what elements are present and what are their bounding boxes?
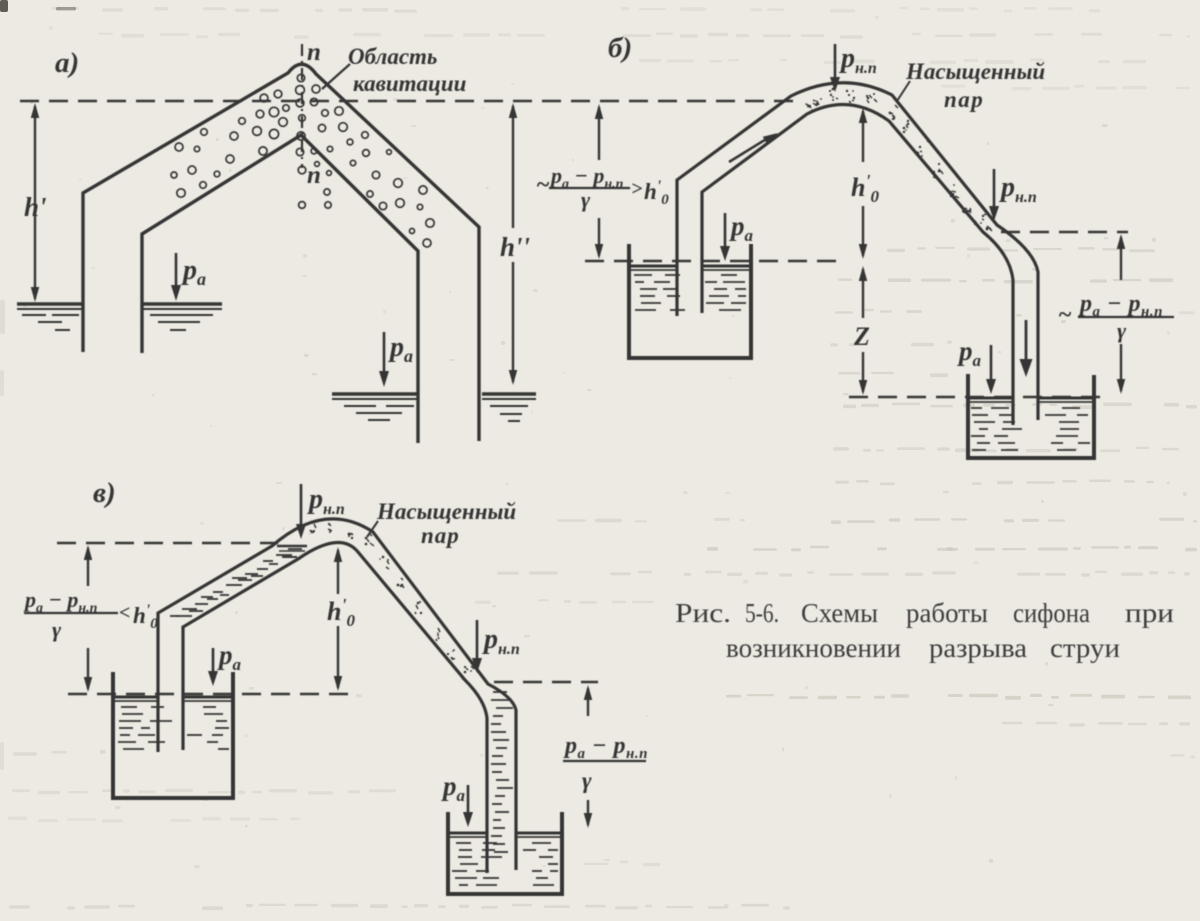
svg-text:γ: γ: [582, 768, 592, 793]
svg-text:а): а): [55, 47, 79, 79]
svg-text:Насыщенный: Насыщенный: [376, 499, 516, 524]
svg-text:Насыщенный: Насыщенный: [905, 59, 1045, 84]
svg-text:γ: γ: [581, 187, 591, 212]
svg-text:n: n: [307, 39, 321, 66]
svg-text:разрыва: разрыва: [929, 633, 1027, 663]
svg-text:n: n: [307, 162, 321, 189]
svg-text:~: ~: [536, 172, 550, 198]
svg-text:сифона: сифона: [1013, 598, 1090, 628]
svg-text:возникновении: возникновении: [726, 633, 901, 663]
svg-text:h': h': [24, 192, 47, 222]
svg-text:<: <: [119, 602, 130, 624]
svg-text:пар: пар: [421, 523, 460, 548]
svg-text:Схемы: Схемы: [801, 598, 878, 628]
svg-text:Область: Область: [348, 44, 437, 69]
svg-text:~: ~: [1058, 302, 1072, 328]
svg-text:в): в): [93, 477, 116, 509]
svg-text:γ: γ: [1117, 318, 1127, 343]
svg-text:Рис.: Рис.: [675, 598, 731, 628]
svg-text:h'': h'': [500, 232, 530, 262]
svg-text:при: при: [1125, 598, 1174, 628]
svg-text:γ: γ: [52, 617, 62, 642]
svg-text:работы: работы: [906, 598, 988, 628]
svg-text:пар: пар: [944, 87, 984, 112]
svg-text:б): б): [608, 32, 632, 64]
svg-text:5-6.: 5-6.: [745, 598, 779, 628]
svg-text:кавитации: кавитации: [353, 71, 467, 96]
svg-text:Z: Z: [853, 322, 870, 351]
svg-text:струи: струи: [1050, 633, 1120, 663]
svg-text:>: >: [631, 178, 642, 200]
